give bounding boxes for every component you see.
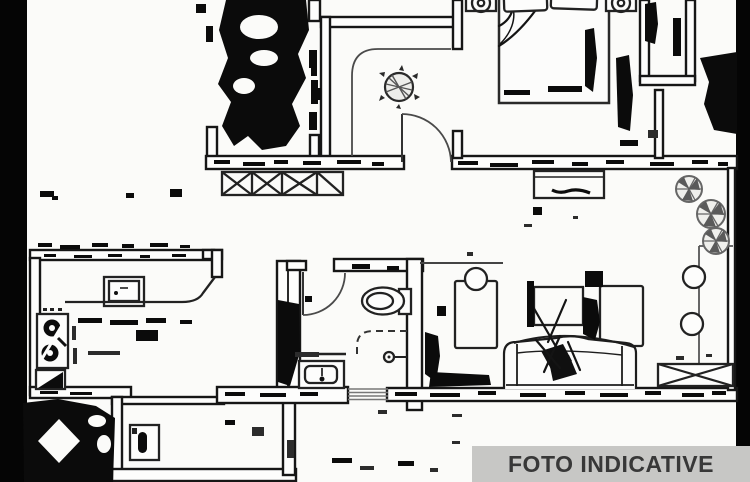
wall <box>728 168 735 390</box>
scan-noise <box>23 0 737 482</box>
wall <box>287 261 306 270</box>
photo-indicative-banner: FOTO INDICATIVE <box>472 446 750 482</box>
door-swing-arc <box>303 273 345 315</box>
living-room <box>455 268 643 389</box>
balcony-stool-icon <box>681 313 703 335</box>
wall <box>686 0 695 81</box>
terrace <box>658 176 733 386</box>
wall <box>112 397 224 404</box>
balcony-table-x-icon <box>658 364 733 386</box>
bathroom <box>291 288 411 389</box>
floor-plan-scan: FOTO INDICATIVE <box>0 0 750 482</box>
wardrobe-x-icon <box>222 172 343 195</box>
radiator-icon <box>534 171 604 198</box>
wall <box>640 76 695 85</box>
kitchen-hob-icon <box>37 308 68 368</box>
tv-cabinet-icon <box>600 286 643 346</box>
wall <box>453 131 462 158</box>
door-threshold <box>348 389 388 400</box>
entry-plant-icon <box>379 65 420 109</box>
chair-icon <box>465 268 487 290</box>
pillow-icon <box>551 0 598 10</box>
wall <box>321 17 330 158</box>
toilet-icon <box>362 288 411 315</box>
wall <box>321 17 455 27</box>
wall <box>453 0 462 49</box>
wall <box>212 250 222 277</box>
pillow-icon <box>504 0 548 12</box>
balcony-stool-icon <box>683 266 705 288</box>
corner-cabinet-icon <box>36 370 65 389</box>
balcony-plant-icon <box>703 228 729 254</box>
floor-plan-drawing <box>0 0 750 482</box>
right-border-strip <box>736 0 750 447</box>
wall <box>112 469 296 481</box>
wall <box>283 399 295 475</box>
banner-label: FOTO INDICATIVE <box>508 451 714 478</box>
door-swing-arc <box>402 114 451 162</box>
balcony-plant-icon <box>697 200 725 228</box>
wall <box>655 90 663 158</box>
left-border-strip <box>0 0 27 482</box>
washing-machine-icon <box>130 425 159 460</box>
balcony-plant-icon <box>676 176 702 202</box>
shower-icon <box>357 331 407 362</box>
wall <box>309 0 320 21</box>
